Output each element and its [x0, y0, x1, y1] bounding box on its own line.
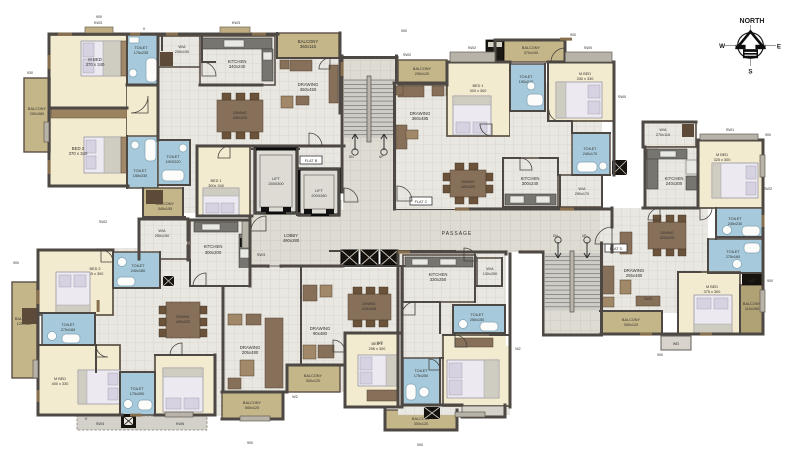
svg-text:M BED: M BED — [54, 377, 66, 381]
svg-text:V: V — [85, 417, 88, 421]
svg-text:W2: W2 — [292, 395, 298, 399]
svg-text:UP: UP — [582, 234, 586, 238]
svg-text:175x235: 175x235 — [134, 51, 149, 55]
svg-text:TOILET: TOILET — [470, 313, 484, 317]
svg-text:W: W — [719, 43, 725, 50]
svg-text:TOILET: TOILET — [414, 369, 428, 373]
svg-text:SW3: SW3 — [644, 297, 652, 301]
svg-text:250x170: 250x170 — [575, 192, 590, 196]
svg-text:415x335: 415x335 — [362, 307, 377, 311]
svg-text:200X280: 200X280 — [311, 194, 326, 198]
svg-text:300x 340: 300x 340 — [208, 184, 224, 188]
svg-text:340x240: 340x240 — [229, 64, 246, 69]
svg-text:400 x 330: 400 x 330 — [52, 382, 69, 386]
svg-text:360x450: 360x450 — [300, 87, 317, 92]
svg-text:W/A: W/A — [158, 229, 166, 233]
svg-text:B/D: B/D — [749, 279, 756, 283]
svg-text:TOILET: TOILET — [133, 169, 147, 173]
svg-text:375 x 300: 375 x 300 — [704, 290, 721, 294]
svg-text:900: 900 — [570, 33, 576, 37]
svg-text:300 x 300: 300 x 300 — [470, 89, 487, 93]
svg-text:W/A: W/A — [178, 45, 186, 49]
svg-text:BALCONY: BALCONY — [304, 374, 323, 378]
svg-text:900: 900 — [657, 353, 663, 357]
svg-text:250x150: 250x150 — [470, 318, 485, 322]
svg-text:BALCONY: BALCONY — [413, 67, 432, 71]
svg-text:205x480: 205x480 — [242, 350, 259, 355]
svg-text:SW2: SW2 — [403, 53, 411, 57]
svg-text:DINING: DINING — [660, 231, 673, 235]
svg-text:930: 930 — [27, 71, 33, 75]
svg-text:DN: DN — [553, 234, 558, 238]
svg-text:270x115: 270x115 — [656, 133, 670, 137]
svg-text:SW0: SW0 — [618, 95, 626, 99]
svg-text:BALCONY: BALCONY — [28, 107, 47, 111]
svg-text:W2: W2 — [377, 341, 383, 345]
svg-text:360x485: 360x485 — [412, 116, 429, 121]
svg-text:PASSAGE: PASSAGE — [442, 231, 473, 237]
svg-text:290x120: 290x120 — [415, 72, 430, 76]
svg-text:TOILET: TOILET — [130, 387, 144, 391]
svg-text:175x250: 175x250 — [414, 374, 429, 378]
svg-text:BED 2: BED 2 — [90, 267, 101, 271]
svg-text:240x300: 240x300 — [666, 181, 683, 186]
svg-text:300x120: 300x120 — [624, 323, 639, 327]
svg-text:BED 1: BED 1 — [473, 84, 484, 88]
svg-text:900: 900 — [96, 15, 102, 19]
svg-text:E: E — [777, 44, 781, 51]
svg-text:370 x 340: 370 x 340 — [69, 151, 88, 156]
svg-text:DINING: DINING — [461, 180, 474, 184]
svg-text:S: S — [748, 69, 752, 76]
svg-text:DINING: DINING — [362, 302, 375, 306]
svg-text:W/A: W/A — [659, 128, 667, 132]
svg-text:BED 1: BED 1 — [211, 179, 222, 183]
svg-text:SW2: SW2 — [468, 46, 476, 50]
svg-text:DINING: DINING — [233, 111, 246, 115]
svg-text:LIFT: LIFT — [315, 189, 323, 193]
svg-text:245x230: 245x230 — [728, 222, 743, 226]
svg-text:490x280: 490x280 — [283, 238, 300, 243]
svg-text:SW1: SW1 — [726, 128, 734, 132]
svg-text:FLAT B: FLAT B — [305, 159, 318, 163]
svg-text:SW2: SW2 — [99, 220, 107, 224]
svg-text:440x220: 440x220 — [233, 116, 248, 120]
svg-text:330 x 330: 330 x 330 — [577, 77, 594, 81]
svg-text:190X220: 190X220 — [165, 160, 180, 164]
svg-text:NORTH: NORTH — [740, 18, 765, 25]
svg-text:SW3: SW3 — [96, 422, 104, 426]
svg-text:TOILET: TOILET — [726, 250, 740, 254]
svg-text:DN: DN — [349, 155, 354, 159]
svg-text:M BED: M BED — [716, 153, 728, 157]
svg-text:200x380: 200x380 — [30, 112, 45, 116]
svg-text:M BED: M BED — [579, 72, 591, 76]
svg-text:TOILET: TOILET — [61, 323, 75, 327]
svg-text:420x320: 420x320 — [461, 185, 476, 189]
svg-text:900: 900 — [765, 133, 771, 137]
svg-text:360x115: 360x115 — [300, 44, 317, 49]
svg-text:320x220: 320x220 — [660, 236, 675, 240]
svg-text:370x100: 370x100 — [524, 51, 539, 55]
svg-text:900: 900 — [767, 279, 773, 283]
svg-text:420x320: 420x320 — [176, 320, 191, 324]
svg-text:90x480: 90x480 — [313, 331, 328, 336]
svg-text:TOILET: TOILET — [166, 155, 180, 159]
svg-text:330x250: 330x250 — [430, 277, 447, 282]
svg-text:300x120: 300x120 — [306, 379, 321, 383]
svg-text:M2: M2 — [515, 347, 520, 351]
svg-text:270x165: 270x165 — [61, 328, 76, 332]
svg-text:250x150: 250x150 — [155, 234, 170, 238]
svg-text:240x180: 240x180 — [131, 269, 146, 273]
svg-text:130x250: 130x250 — [483, 272, 498, 276]
svg-text:345x155: 345x155 — [158, 207, 173, 211]
svg-text:SW3: SW3 — [257, 253, 265, 257]
svg-text:SW0: SW0 — [584, 46, 592, 50]
svg-text:240x170: 240x170 — [583, 152, 598, 156]
svg-text:BALCONY: BALCONY — [243, 401, 262, 405]
svg-text:900: 900 — [13, 261, 19, 265]
svg-text:900: 900 — [417, 443, 423, 447]
svg-text:175x250: 175x250 — [130, 392, 145, 396]
svg-text:KW3: KW3 — [232, 21, 240, 25]
svg-text:FLAT C: FLAT C — [415, 200, 428, 204]
svg-text:LIFT: LIFT — [272, 177, 280, 181]
svg-text:WD: WD — [673, 342, 680, 346]
svg-text:155x230: 155x230 — [133, 174, 148, 178]
svg-text:110x265: 110x265 — [745, 307, 759, 311]
svg-text:200x190: 200x190 — [175, 50, 190, 54]
svg-text:370 x 340: 370 x 340 — [86, 62, 105, 67]
svg-text:KITCHEN: KITCHEN — [204, 244, 223, 249]
svg-text:900: 900 — [247, 441, 253, 445]
svg-text:500x120: 500x120 — [245, 406, 260, 410]
svg-text:325 x 300: 325 x 300 — [714, 158, 731, 162]
svg-text:300x200: 300x200 — [205, 250, 222, 255]
svg-text:BALCONY: BALCONY — [743, 302, 762, 306]
svg-text:900: 900 — [401, 29, 407, 33]
svg-text:300x120: 300x120 — [414, 422, 429, 426]
svg-text:TOILET: TOILET — [131, 264, 145, 268]
svg-text:KW6: KW6 — [176, 422, 184, 426]
svg-text:BALCONY: BALCONY — [622, 318, 641, 322]
svg-text:TOILET: TOILET — [583, 147, 597, 151]
svg-text:SW2: SW2 — [764, 187, 772, 191]
svg-text:265X300: 265X300 — [268, 182, 283, 186]
svg-text:V: V — [143, 27, 146, 31]
svg-text:255x480: 255x480 — [626, 273, 643, 278]
svg-text:TOILET: TOILET — [134, 46, 148, 50]
svg-text:UP: UP — [379, 155, 383, 159]
svg-text:296 x 300: 296 x 300 — [369, 347, 386, 351]
svg-text:BALCONY: BALCONY — [522, 46, 541, 50]
svg-text:275x160: 275x160 — [726, 255, 741, 259]
svg-text:300x240: 300x240 — [522, 181, 539, 186]
svg-text:DINING: DINING — [176, 315, 189, 319]
svg-text:W/A: W/A — [486, 267, 494, 271]
svg-text:KW3: KW3 — [94, 21, 102, 25]
svg-text:TOILET: TOILET — [728, 217, 742, 221]
svg-text:W/A: W/A — [578, 187, 586, 191]
svg-text:M BED: M BED — [706, 285, 718, 289]
svg-text:TOILET: TOILET — [519, 75, 533, 79]
